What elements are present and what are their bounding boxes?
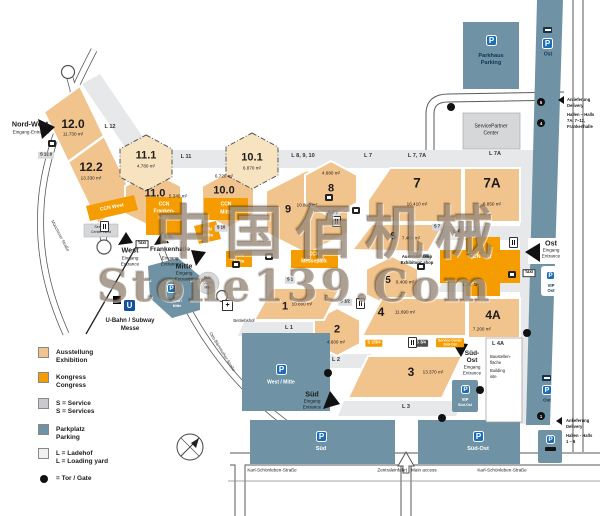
bus-icon-ost-mid: [542, 375, 551, 381]
compass-rose: [177, 434, 203, 460]
entrance-mitte-l2: Entrance: [175, 278, 193, 283]
legend-loading-en: L = Loading yard: [56, 459, 108, 466]
ccn-frankenhalle-l1: CCN: [159, 203, 170, 208]
restaurant-icon-ccn-ost: [509, 237, 518, 248]
ccn-mitte-a-l1: CCN: [202, 228, 212, 233]
gate-4: 4: [537, 119, 545, 127]
ccn-mitte-upper-l1: CCN: [221, 203, 232, 208]
legend-exhibition-de: Ausstellung: [56, 350, 93, 357]
west-mitte-p-icon: P: [276, 364, 287, 375]
legend-gate-label: = Tor / Gate: [56, 476, 91, 483]
delivery-top-l4: 7A, 7–12,: [567, 119, 585, 123]
entrance-ost-l1: Eingang: [543, 249, 560, 254]
legend-swatch-congress: [38, 372, 49, 383]
gate-5: 5: [537, 98, 545, 106]
map-base-svg: [0, 0, 600, 516]
betriebshof-label: Betriebshof: [233, 319, 254, 323]
hall-10-1-label: 10.1: [241, 153, 262, 164]
vip-west-mitte-p-icon: P: [167, 284, 176, 293]
hall-12-2-area: 13.330 m²: [81, 177, 102, 182]
delivery-top-l2: Delivery: [567, 104, 583, 108]
restaurant-icon-sued-ost: [408, 337, 417, 348]
service-s11-badge: S 11: [162, 234, 174, 241]
service-s1-badge: S 1: [285, 277, 295, 284]
info-screen-icon-nordwest: [48, 140, 56, 147]
service-center-sued-ost-l2: Süd-Ost: [443, 342, 456, 346]
hall-12-0-label: 12.0: [61, 118, 84, 130]
loading-l6: L 6: [453, 230, 461, 236]
service-s2-3-4-badge: S 2/3/4: [365, 340, 382, 347]
service-s1-2-badge: S 1/2: [338, 299, 352, 306]
street-karl-schoenleben-left: Karl-Schönleben-Straße: [247, 469, 296, 474]
legend-swatch-service: [38, 398, 49, 409]
entrance-sued-name: Süd: [305, 390, 319, 397]
street-zentraleinfahrt: Zentraleinfahrt · Main access: [377, 469, 436, 474]
ost-lower-p-icon: P: [546, 435, 555, 444]
entrance-suedost-name2: Ost: [467, 358, 478, 365]
legend-swatch-exhibition: [38, 347, 49, 358]
gate-ost-column: [523, 329, 531, 337]
hall-10-1-area: 6.870 m²: [243, 167, 261, 172]
vip-ost-l2: Ost: [548, 289, 555, 293]
parkhaus-p-icon: P: [486, 35, 497, 46]
delivery-bottom-l4: 1 – 6: [566, 440, 575, 444]
hall-11-1-label: 11.1: [136, 151, 157, 162]
loading-l8-9-10: L 8, 9, 10: [291, 154, 315, 160]
hall-6-shape: [352, 224, 444, 252]
info-screen-icon-hall8: [325, 194, 333, 201]
loading-l1: L 1: [285, 326, 293, 332]
delivery-top-l5: Frankenhalle: [567, 125, 593, 129]
sued-p-icon: P: [316, 431, 327, 442]
building-site-l2: fläche: [490, 361, 501, 365]
hall-1-label: 1: [282, 302, 288, 313]
cc-frankenhalle-l3: halle: [158, 217, 169, 222]
legend-parking-de: Parkplatz: [56, 427, 85, 434]
info-screen-icon-mitte: [232, 261, 240, 268]
arrow-mitte: [191, 250, 206, 266]
hall-7-label: 7: [413, 176, 421, 190]
first-aid-icon: +: [222, 300, 233, 311]
info-screen-icon-messepark: [265, 253, 273, 260]
legend-service-en: S = Services: [56, 409, 95, 416]
bus-bar-icon: [545, 447, 556, 451]
sued-parking: [250, 420, 395, 464]
hall-4a-area: 7.200 m²: [473, 328, 491, 333]
legend-loading-de: L = Ladehof: [56, 451, 93, 458]
hall-4-area: 11.690 m²: [395, 311, 415, 316]
hall-1-area: 10.800 m²: [292, 303, 313, 308]
legend-congress-en: Congress: [56, 383, 86, 390]
taxi-badge-ost: TAXI: [523, 269, 536, 277]
ost-mid-label: Ost: [543, 399, 551, 404]
building-site-l3: Building: [490, 369, 505, 373]
hall-5-label: 5: [385, 276, 391, 286]
delivery-bottom-l1: Anlieferung: [566, 419, 589, 423]
hall-3-area: 13.370 m²: [423, 371, 444, 376]
loading-l11: L 11: [181, 155, 192, 161]
info-screen-icon-hall9: [352, 207, 360, 214]
loading-l7: L 7: [364, 154, 372, 160]
hall-11-0-area: 5.340 m²: [169, 195, 187, 200]
entrance-nordwest-name: Nord-West: [12, 120, 48, 127]
ccn-mitte-b-l1: CCN: [234, 254, 244, 259]
entrance-mitte-name: Mitte: [176, 262, 193, 269]
hall-11-1-area: 4.780 m²: [137, 165, 155, 170]
ubahn-icon: U: [124, 300, 135, 311]
hall-8-label: 8: [328, 184, 334, 195]
hall-4-label: 4: [378, 306, 385, 318]
bus-icon-ost-top: [543, 27, 552, 33]
loading-l3: L 3: [402, 405, 410, 411]
gate-sued-west: [324, 369, 332, 377]
sued-ost-label: Süd-Ost: [467, 447, 489, 453]
restaurant-icon-hall9: [332, 216, 341, 227]
entrance-mitte-l1: Eingang: [176, 272, 193, 277]
legend-gate-icon: [40, 475, 48, 483]
gate-top-road: [447, 103, 455, 111]
building-site-l4: site: [490, 375, 497, 379]
service-s12-0-badge: S 12.0: [38, 152, 54, 159]
hall-4a-label: 4A: [485, 309, 500, 321]
service-center-mitte-l2: Center: [203, 281, 213, 284]
entrance-nordwest-sub: Eingang·Entrance: [13, 131, 50, 136]
taxi-badge-west: TAXI: [136, 240, 149, 248]
ost-parking-strip: [526, 0, 563, 425]
vip-sued-ost-l2: Süd-Ost: [458, 404, 472, 408]
ccn-mitte-a-l2: Mitte: [203, 234, 214, 239]
info-screen-icon-ccn-ost: [508, 271, 516, 278]
roundabout-nordwest: [62, 66, 75, 79]
delivery-top-l1: Anlieferung: [567, 98, 590, 102]
service-partner-l1: ServicePartner: [474, 125, 507, 130]
hall-12-0-area: 11.730 m²: [63, 133, 83, 138]
entrance-west-l1: Eingang: [122, 257, 139, 262]
west-mitte-label: West / Mitte: [267, 381, 295, 386]
entrance-sued-l1: Eingang: [304, 400, 321, 405]
service-s10-badge: S 10: [215, 225, 228, 232]
loading-l2: L 2: [332, 358, 340, 364]
messe-site-map: 12.0 11.730 m² 12.2 13.330 m² 11.1 4.780…: [0, 0, 600, 516]
service-center-mitte-l1: Serv.-: [204, 276, 212, 279]
hall-6-label: 6: [390, 232, 396, 243]
legend-service-de: S = Service: [56, 401, 91, 408]
hall-5-area: 8.400 m²: [396, 281, 414, 286]
ccn-messepark-l2: Messepark: [301, 260, 327, 265]
gate-sued-ost-b: [476, 386, 484, 394]
ccn-messepark-l1: CCN: [309, 253, 320, 258]
entrance-frankenhalle-name: Frankenhalle: [150, 247, 190, 254]
service-s7-badge: S 7: [432, 224, 442, 231]
sued-label: Süd: [316, 447, 327, 453]
ccn-ost-label: CCN Ost: [469, 255, 492, 261]
vip-sued-ost-l1: VIP: [462, 398, 469, 402]
hall-12-2-label: 12.2: [79, 161, 102, 173]
sued-ost-parking: [418, 420, 520, 464]
building-site-box: [486, 338, 522, 422]
delivery-top-l3: Hallen – Halls: [567, 113, 594, 117]
ost-mid-p-icon: P: [542, 385, 552, 395]
hall-7a-area: 8.850 m²: [483, 203, 501, 208]
arrow-delivery-bottom: [556, 417, 562, 425]
service-center-sued-ost-badge: Service-CenterSüd-Ost: [436, 338, 464, 347]
restaurant-icon-west: [100, 221, 109, 232]
vip-west-mitte-l3: Mitte: [173, 305, 181, 309]
hall-10-0-area: 6.720 m²: [215, 175, 233, 180]
hall-3-shape: [348, 356, 462, 398]
ost-top-label: Ost: [544, 53, 552, 58]
delivery-bottom-l3: Hallen - Halls: [566, 434, 592, 438]
parkhaus-label-l1: Parkhaus: [478, 54, 503, 60]
hall-7-area: 16.410 m²: [407, 203, 428, 208]
hall-2-label: 2: [334, 325, 340, 336]
roundabout-west: [97, 240, 111, 254]
subway-station-marker: [113, 296, 121, 304]
street-karl-schoenleben-right: Karl-Schönleben-Straße: [477, 469, 526, 474]
sued-ost-p-icon: P: [473, 431, 484, 442]
delivery-bottom-l2: Delivery: [566, 425, 582, 429]
loading-l4a: L 4A: [492, 342, 504, 348]
ubahn-label: U-Bahn / Subway: [105, 318, 154, 324]
entrance-west-l2: Entrance: [121, 263, 139, 268]
ccn-mitte-upper-l2: Mitte: [220, 211, 232, 216]
ccn-frankenhalle-l2: Franken-: [153, 210, 174, 215]
service-partner-l2: Center: [483, 132, 498, 137]
legend-parking-en: Parking: [56, 435, 80, 442]
entrance-ost-l2: Entrance: [542, 255, 560, 260]
vip-sued-ost-p-icon: P: [461, 385, 470, 394]
building-site-l1: Baustellen-: [490, 355, 511, 359]
service-center-mitte-l3: Mitte: [205, 286, 212, 289]
hall-2-area: 4.600 m²: [327, 341, 345, 346]
legend-congress-de: Kongress: [56, 375, 86, 382]
hall-9-label: 9: [285, 205, 291, 216]
hall-8-area: 4.680 m²: [322, 172, 340, 177]
exhibitors-shop-l1: Ausstellershop: [402, 255, 432, 259]
hall-10-0-label: 10.0: [213, 186, 234, 197]
legend-exhibition-en: Exhibition: [56, 358, 87, 365]
hall-6-area: 7.400 m²: [402, 237, 420, 242]
ubahn-station-label: Messe: [121, 326, 139, 332]
info-screen-icon-shop: [417, 263, 425, 270]
arrow-west: [118, 232, 133, 245]
hall-7a-label: 7A: [483, 176, 500, 190]
loading-l7a: L 7A: [489, 152, 501, 158]
vip-ost-p-icon: P: [546, 271, 555, 280]
loading-l4-5: L 4, 5: [463, 283, 477, 289]
parkhaus-label-l2: Parking: [481, 61, 502, 67]
restaurant-icon-hall1: [356, 298, 365, 309]
ost-top-p-icon: P: [542, 38, 553, 49]
hall-9-area: 10.800 m²: [297, 204, 318, 209]
entrance-suedost-l1: Eingang: [464, 366, 481, 371]
hall-3-label: 3: [408, 366, 415, 378]
loading-l7-7a: L 7, 7A: [408, 154, 426, 160]
entrance-ost-name: Ost: [545, 239, 557, 246]
gate-sued-ost-a: [438, 414, 446, 422]
gate-1: 1: [537, 412, 545, 420]
entrance-sued-l2: Entrance: [303, 406, 321, 411]
entrance-suedost-l2: Entrance: [463, 372, 481, 377]
legend-swatch-parking: [38, 424, 49, 435]
legend-swatch-loading: [38, 448, 49, 459]
loading-l12: L 12: [104, 125, 115, 131]
hall-11-0-label: 11.0: [145, 189, 166, 200]
